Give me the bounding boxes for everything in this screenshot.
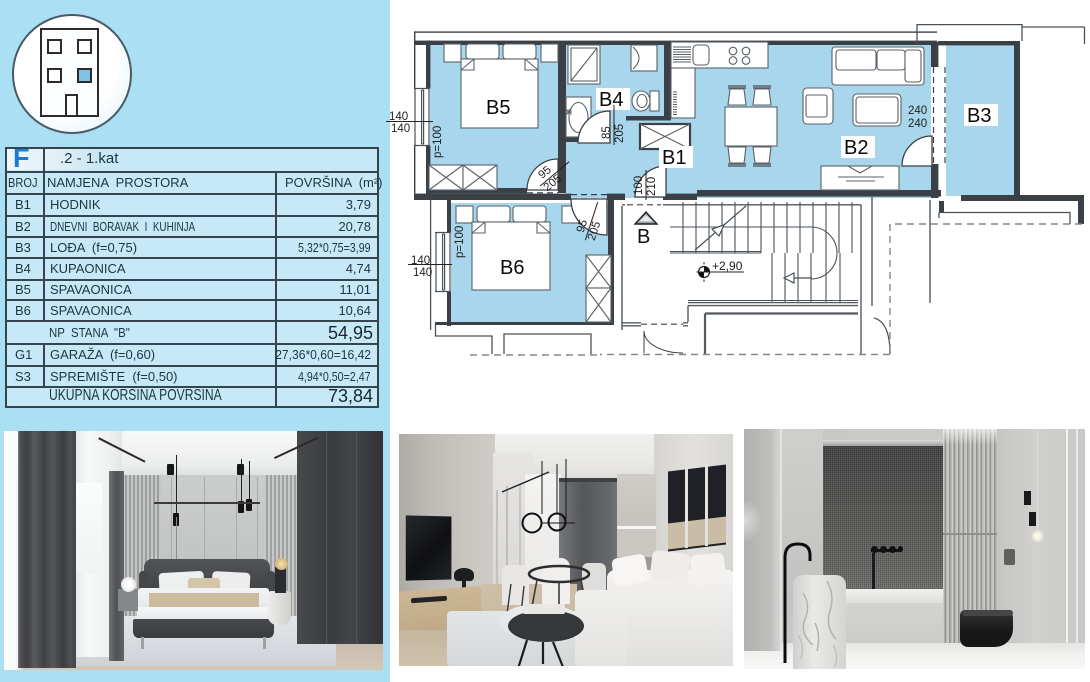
svg-text:140: 140 [391,123,410,135]
svg-text:240: 240 [908,118,927,130]
svg-text:p=100: p=100 [432,126,444,158]
svg-text:B3: B3 [967,105,991,127]
svg-text:240: 240 [908,105,927,117]
svg-text:100: 100 [633,176,645,195]
svg-text:210: 210 [646,177,658,196]
svg-text:B1: B1 [662,147,686,169]
svg-text:B5: B5 [486,97,510,119]
svg-text:B4: B4 [599,89,623,111]
svg-text:B6: B6 [500,257,524,279]
svg-text:B2: B2 [844,137,868,159]
svg-text:p=100: p=100 [454,226,466,258]
svg-text:B: B [637,226,650,248]
svg-text:+2,90: +2,90 [712,259,743,273]
svg-text:140: 140 [411,255,430,267]
svg-text:85: 85 [601,126,613,139]
svg-text:140: 140 [413,267,432,279]
svg-text:205: 205 [614,124,626,143]
